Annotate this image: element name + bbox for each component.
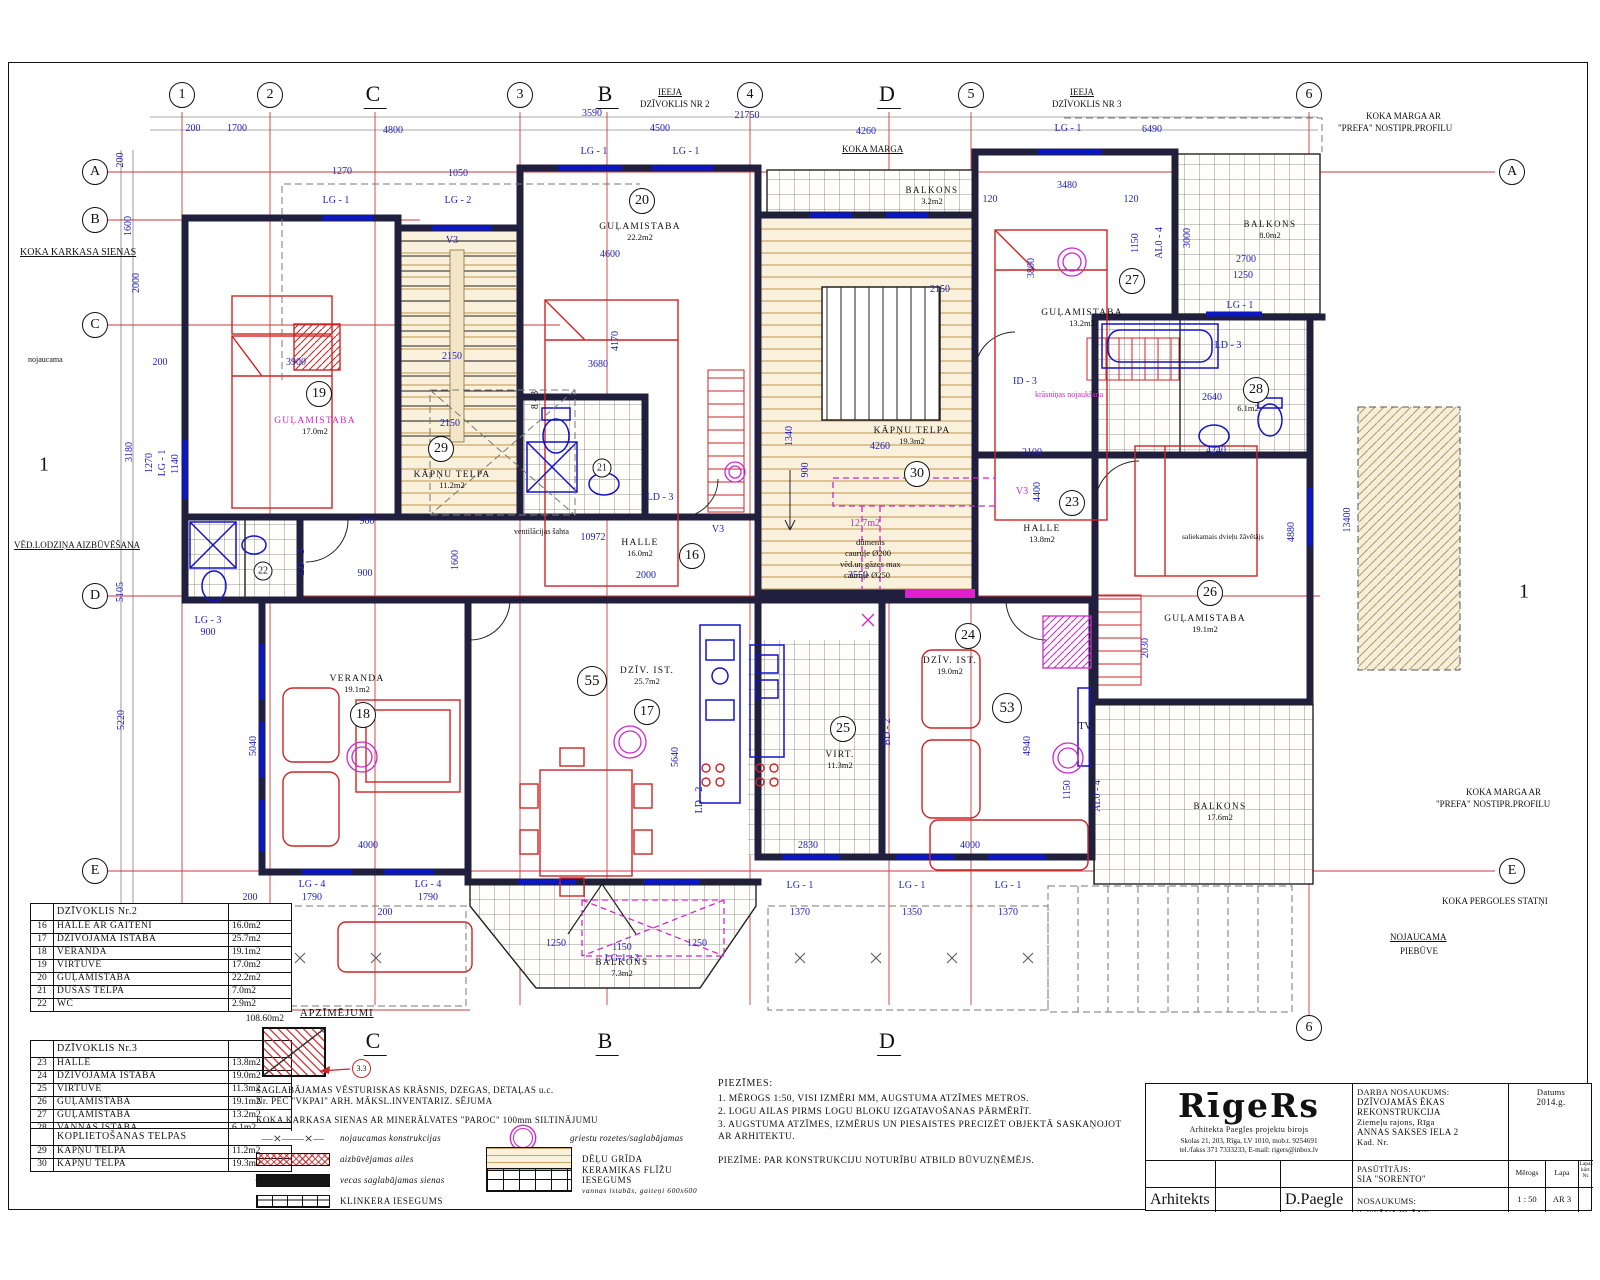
room-label-20: GUĻAMISTABA22.2m2 xyxy=(599,222,681,243)
company-subtitle: Arhitekta Paegles projektu birojs xyxy=(1146,1125,1352,1134)
room-table-0: DZĪVOKLIS Nr.216HALLE AR GAITENI16.0m217… xyxy=(30,903,292,1024)
dim-label-36: 3180 xyxy=(125,442,135,462)
job-line5: Kad. Nr. xyxy=(1357,1137,1504,1147)
dim-label-35: 2000 xyxy=(132,273,142,293)
drawing-name-cell: NOSAUKUMS: 2. STĀVA PLĀNS xyxy=(1353,1188,1509,1212)
table-row: 16HALLE AR GAITENI16.0m2 xyxy=(31,921,292,934)
dim-label-20: AL0 - 4 xyxy=(1155,227,1165,259)
annotation-15: ventilācijas šahta xyxy=(514,528,569,537)
table-title: DZĪVOKLIS Nr.2 xyxy=(54,904,229,921)
annotation-9: "PREFA" NOSTIPR.PROFILU xyxy=(1338,124,1452,134)
dim-label-10: LG - 1 xyxy=(323,196,350,206)
dim-label-58: 2030 xyxy=(1141,638,1151,658)
balcony-label-2: BALKONS17.6m2 xyxy=(1193,801,1246,822)
dim-label-39: 1140 xyxy=(171,454,181,474)
room-number-23: 23 xyxy=(1059,490,1085,516)
table-title: KOPLIETOŠANAS TELPAS xyxy=(54,1129,229,1146)
dim-label-90: LD - 3 xyxy=(297,549,307,576)
table-row: 30KĀPŅU TELPA19.3m2 xyxy=(31,1159,292,1172)
room-number-26: 26 xyxy=(1197,580,1223,606)
room-number-30: 30 xyxy=(904,461,930,487)
dim-label-74: 200 xyxy=(378,908,393,918)
dim-label-52: 900 xyxy=(801,463,811,478)
dim-label-26: 4170 xyxy=(611,331,621,351)
grid-axis-top-5: 5 xyxy=(958,82,984,108)
room-label-26: GUĻAMISTABA19.1m2 xyxy=(1164,614,1246,635)
titleblock-client-cell: PASŪTĪTĀJS: SIA "SORENTO" xyxy=(1353,1161,1509,1188)
dim-label-76: LG-1 +2 xyxy=(605,954,640,964)
dim-label-45: 900 xyxy=(360,517,375,527)
client-value: SIA "SORENTO" xyxy=(1357,1174,1504,1184)
dim-label-19: 1150 xyxy=(1131,233,1141,253)
room-table-grid: DZĪVOKLIS Nr.323HALLE13.8m224DZĪVOJAMĀ I… xyxy=(30,1040,292,1136)
dim-label-3: 3590 xyxy=(582,109,602,119)
job-line1: DZĪVOJAMĀS ĒKAS xyxy=(1357,1097,1504,1107)
room-number-19: 19 xyxy=(306,381,332,407)
annotation-1: nojaucama xyxy=(28,356,63,365)
annotation-13: NOJAUCAMA xyxy=(1390,933,1447,943)
sheetno-header: Lapas kārt. Nr. xyxy=(1579,1161,1593,1188)
grid-axis-top-1: 1 xyxy=(169,82,195,108)
titleblock-date-cell: Datums 2014.g. xyxy=(1509,1084,1593,1161)
dim-label-6: 4260 xyxy=(856,127,876,137)
dim-label-12: LG - 1 xyxy=(581,147,608,157)
annotation-12: KOKA PERGOLES STATŅI xyxy=(1442,897,1548,907)
annotation-19: cauruļe Ø250 xyxy=(844,571,890,580)
room-label-27: GUĻAMISTABA13.2m2 xyxy=(1041,308,1123,329)
dim-label-9: 1050 xyxy=(448,169,468,179)
annotation-18: vēd.un gāzes max xyxy=(840,560,901,569)
legend-column-left: —⨯——⨯—nojaucamas konstrukcijasaizbūvējam… xyxy=(256,1125,486,1209)
dim-label-2: 4800 xyxy=(383,126,403,136)
author-cell: D.Paegle xyxy=(1281,1188,1353,1212)
dim-label-27: 3680 xyxy=(588,360,608,370)
dim-label-46: 900 xyxy=(358,569,373,579)
dim-label-41: 5220 xyxy=(117,710,127,730)
dim-label-16: 120 xyxy=(983,195,998,205)
annotation-14: PIEBŪVE xyxy=(1400,947,1438,957)
room-label-17: DZĪV. IST.25.7m2 xyxy=(620,666,674,687)
grid-axis-right-A: A xyxy=(1499,159,1525,185)
dim-label-67: BD - 2 xyxy=(883,718,893,745)
table-row: 17DZĪVOJAMĀ ISTABA25.7m2 xyxy=(31,934,292,947)
dim-label-59: 5640 xyxy=(671,747,681,767)
dim-label-18: 3800 xyxy=(1027,258,1037,278)
grid-axis-left-E: E xyxy=(82,858,108,884)
dim-label-24: LG - 1 xyxy=(1227,301,1254,311)
grid-axis-left-B: B xyxy=(82,207,108,233)
dim-label-40: 5105 xyxy=(116,582,126,602)
dim-label-55: 4240 xyxy=(1206,446,1226,456)
drawing-sheet: { "axes": { "top": [ {"l":"1","x":182,"c… xyxy=(0,0,1600,1280)
room-table-2: KOPLIETOŠANAS TELPAS29KĀPŅU TELPA11.2m23… xyxy=(30,1128,292,1184)
annotation-0: KOKA KARKASA SIENAS xyxy=(20,247,136,258)
dim-label-71: LG - 4 xyxy=(415,880,442,890)
room-number-22: 22 xyxy=(254,562,273,581)
floor-finishes xyxy=(187,154,1460,988)
balcony-label-0: BALKONS3.2m2 xyxy=(905,185,958,206)
room-number-53: 53 xyxy=(992,693,1022,723)
dim-label-51: 1340 xyxy=(785,426,795,446)
annotation-7: KOKA MARGA xyxy=(842,145,903,155)
dim-label-53: 2100 xyxy=(1022,448,1042,458)
table-title: DZĪVOKLIS Nr.3 xyxy=(54,1041,229,1058)
dim-label-84: 1370 xyxy=(998,908,1018,918)
grid-axis-left-A: A xyxy=(82,159,108,185)
job-label: DARBA NOSAUKUMS: xyxy=(1357,1087,1504,1097)
room-number-21: 21 xyxy=(593,459,612,478)
company-logo: RīgeRs xyxy=(1146,1086,1352,1125)
table-row: 18VERANDA19.1m2 xyxy=(31,947,292,960)
legend-swatch-grid-icon xyxy=(256,1195,330,1208)
table-row: 21DUŠAS TELPA7.0m2 xyxy=(31,986,292,999)
dim-label-78: 1250 xyxy=(687,939,707,949)
room-number-18: 18 xyxy=(350,702,376,728)
room-number-55: 55 xyxy=(577,666,607,696)
company-address: Skolas 21, 203, Rīga, LV 1010, mob.t. 92… xyxy=(1146,1137,1352,1155)
room-label-19: GUĻAMISTABA17.0m2 xyxy=(274,416,356,437)
dim-label-44: 10972 xyxy=(581,533,606,543)
dim-label-64: 4940 xyxy=(1023,736,1033,756)
dim-label-17: 120 xyxy=(1124,195,1139,205)
annotation-20: saliekamais dvieļu žāvētājs xyxy=(1182,533,1264,541)
legend-label: nojaucamas konstrukcijas xyxy=(340,1133,441,1143)
legend: APZĪMĒJUMI 3.3 SAGLABĀJAMAS VĒSTURISKAS … xyxy=(256,1008,708,1209)
legend-swatch-redcross-icon xyxy=(256,1153,330,1166)
room-label-24: DZĪV. IST.19.0m2 xyxy=(923,656,977,677)
annotation-17: cauruļe Ø200 xyxy=(845,549,891,558)
dim-label-30: 2150 xyxy=(930,285,950,295)
dim-label-75: 1150 xyxy=(612,943,632,953)
table-row: 24DZĪVOJAMĀ ISTABA19.0m2 xyxy=(31,1071,292,1084)
dim-label-56: 4880 xyxy=(1287,522,1297,542)
table-row: 23HALLE13.8m2 xyxy=(31,1058,292,1071)
room-number-27: 27 xyxy=(1119,268,1145,294)
drawing-name-label: NOSAUKUMS: xyxy=(1357,1196,1416,1206)
dim-label-23: 1250 xyxy=(1233,271,1253,281)
dim-label-22: 2700 xyxy=(1236,255,1256,265)
grid-axis-right-E: E xyxy=(1499,858,1525,884)
dim-label-32: 200 xyxy=(153,358,168,368)
balcony-label-1: BALKONS8.0m2 xyxy=(1243,219,1296,240)
room-label-18: VERANDA19.1m2 xyxy=(330,674,385,695)
titleblock-empty-3 xyxy=(1281,1161,1353,1188)
note-item-2: 3. AUGSTUMA ATZĪMES, IZMĒRUS UN PIESAIST… xyxy=(718,1119,1148,1132)
dim-label-47: 1600 xyxy=(451,550,461,570)
grid-axis-left-D: D xyxy=(82,583,108,609)
grid-axis-bottom-D: D xyxy=(877,1028,901,1056)
annotation-3: IEEJA xyxy=(658,88,682,98)
dim-label-48: 2000 xyxy=(636,571,656,581)
dim-label-21: 3000 xyxy=(1183,228,1193,248)
room-label-25: VIRT.11.3m2 xyxy=(825,750,854,771)
legend-swatch-tile-icon xyxy=(486,1168,572,1192)
dim-label-95: TV xyxy=(1078,722,1091,732)
annotation-11: "PREFA" NOSTIPR.PROFILU xyxy=(1436,800,1550,810)
legend-label: vecas saglabājamas sienas xyxy=(340,1175,445,1185)
notes-items: 1. MĒROGS 1:50, VISI IZMĒRI MM, AUGSTUMA… xyxy=(718,1093,1148,1144)
dim-label-72: 1790 xyxy=(418,893,438,903)
legend-swatch-xline-icon: —⨯——⨯— xyxy=(256,1131,330,1145)
room-number-24: 24 xyxy=(955,623,981,649)
drawing-name-value: 2. STĀVA PLĀNS xyxy=(1357,1209,1504,1212)
job-line3: Ziemeļu rajons, Rīga xyxy=(1357,1117,1504,1127)
dim-label-91: LD - 3 xyxy=(647,493,674,503)
legend-stove-symbol: 3.3 xyxy=(256,1025,456,1083)
client-label: PASŪTĪTĀJS: xyxy=(1357,1164,1504,1174)
dim-label-80: 1370 xyxy=(790,908,810,918)
dim-label-7: 6490 xyxy=(1142,125,1162,135)
room-number-16: 16 xyxy=(679,543,705,569)
dim-label-61: 4000 xyxy=(358,841,378,851)
dim-label-94: 8 - 3 xyxy=(531,391,541,409)
legend-item-left-0: —⨯——⨯—nojaucamas konstrukcijas xyxy=(256,1131,486,1146)
legend-label: DĒĻU GRĪDA xyxy=(582,1154,643,1164)
annotation-21: krāsniņas nojaukšana xyxy=(1035,391,1103,400)
dim-label-42: LG - 3 xyxy=(195,616,222,626)
date-label: Datums xyxy=(1513,1087,1589,1097)
dim-label-57: 13400 xyxy=(1343,508,1353,533)
dim-label-92: LD - 3 xyxy=(1215,341,1242,351)
dim-label-43: 900 xyxy=(201,628,216,638)
dim-label-8: 1270 xyxy=(332,167,352,177)
dim-label-11: LG - 2 xyxy=(445,196,472,206)
room-number-17: 17 xyxy=(634,699,660,725)
dim-label-65: 1150 xyxy=(1063,780,1073,800)
room-table-grid: KOPLIETOŠANAS TELPAS29KĀPŅU TELPA11.2m23… xyxy=(30,1128,292,1172)
dim-label-0: 200 xyxy=(186,124,201,134)
role-cell: Arhitekts xyxy=(1146,1188,1216,1212)
dim-label-79: LG - 1 xyxy=(787,881,814,891)
dim-label-69: LG - 4 xyxy=(299,880,326,890)
titleblock-empty-1 xyxy=(1146,1161,1216,1188)
table-row: 20GUĻAMISTABA22.2m2 xyxy=(31,973,292,986)
dim-label-15: 3480 xyxy=(1057,181,1077,191)
note-item-3: AR ARHITEKTU. xyxy=(718,1131,1148,1144)
table-row: 19VIRTUVE17.0m2 xyxy=(31,960,292,973)
grid-axis-top-2: 2 xyxy=(257,82,283,108)
titleblock-logo-cell: RīgeRs Arhitekta Paegles projektu birojs… xyxy=(1146,1084,1353,1161)
dim-label-93: 12.7m2 xyxy=(850,519,880,529)
dim-label-28: 2150 xyxy=(442,352,462,362)
grid-axis-top-3: 3 xyxy=(507,82,533,108)
titleblock-empty-2 xyxy=(1216,1161,1281,1188)
grid-axis-left-C: C xyxy=(82,312,108,338)
grid-axis-top-D: D xyxy=(877,81,901,109)
role-empty-cell xyxy=(1216,1188,1281,1212)
job-line2: REKONSTRUKCIJA xyxy=(1357,1107,1504,1117)
sheet-value: AR 3 xyxy=(1546,1188,1579,1212)
room-label-29: KĀPŅU TELPA11.2m2 xyxy=(414,470,491,491)
dim-label-77: 1250 xyxy=(546,939,566,949)
table-row: 22WC2.9m2 xyxy=(31,999,292,1012)
dim-label-66: AL0 - 4 xyxy=(1093,780,1103,812)
dim-label-89: V3 xyxy=(1016,487,1028,497)
table-total: 30.5m2 xyxy=(30,1172,292,1184)
dim-label-82: 1350 xyxy=(902,908,922,918)
sheet-header: Lapa xyxy=(1546,1161,1579,1188)
legend-item-left-1: aizbūvējamas ailes xyxy=(256,1152,486,1167)
legend-item-left-2: vecas saglabājamas sienas xyxy=(256,1173,486,1188)
notes-block: PIEZĪMES: 1. MĒROGS 1:50, VISI IZMĒRI MM… xyxy=(718,1078,1148,1166)
table-total: 108.60m2 xyxy=(30,1012,292,1024)
annotation-6: DZĪVOKLIS NR 3 xyxy=(1052,100,1122,110)
dim-label-4: 4500 xyxy=(650,124,670,134)
legend-note-2: KOKA KARKASA SIENAS AR MINERĀLVATES "PAR… xyxy=(256,1115,708,1125)
legend-label: KERAMIKAS FLĪŽU IESEGUMSvannas istabās, … xyxy=(582,1165,708,1195)
dim-label-33: 200 xyxy=(116,153,126,168)
dim-label-83: LG - 1 xyxy=(995,881,1022,891)
room-area-28: 6.1m2 xyxy=(1237,404,1259,414)
note-item-0: 1. MĒROGS 1:50, VISI IZMĒRI MM, AUGSTUMA… xyxy=(718,1093,1148,1106)
dim-label-13: LG - 1 xyxy=(673,147,700,157)
annotation-16: dūmenis xyxy=(856,538,885,547)
date-value: 2014.g. xyxy=(1513,1097,1589,1107)
room-table-grid: DZĪVOKLIS Nr.216HALLE AR GAITENI16.0m217… xyxy=(30,903,292,1012)
legend-title: APZĪMĒJUMI xyxy=(300,1008,708,1019)
dim-label-81: LG - 1 xyxy=(899,881,926,891)
legend-item-right-0: griestu rozetes/saglabājamas xyxy=(486,1131,708,1146)
dim-label-54: 4400 xyxy=(1033,482,1043,502)
annotation-2: VĒD.LODZIŅA AIZBŪVĒŠANA xyxy=(14,541,140,551)
legend-label: griestu rozetes/saglabājamas xyxy=(570,1133,683,1143)
note-item-1: 2. LOGU AILAS PIRMS LOGU BLOKU IZGATAVOŠ… xyxy=(718,1106,1148,1119)
dim-label-60: 5040 xyxy=(249,736,259,756)
dim-label-63: 4000 xyxy=(960,841,980,851)
legend-item-right-2: KERAMIKAS FLĪŽU IESEGUMSvannas istabās, … xyxy=(486,1173,708,1188)
annotation-5: IEEJA xyxy=(1070,88,1094,98)
dim-label-68: LD - 2 xyxy=(695,787,705,814)
dim-label-37: 1270 xyxy=(145,453,155,473)
grid-axis-top-4: 4 xyxy=(737,82,763,108)
table-row: 27GUĻAMISTABA13.2m2 xyxy=(31,1110,292,1123)
dim-label-86: ID - 3 xyxy=(1013,377,1037,387)
dim-label-38: LG - 1 xyxy=(158,450,168,477)
legend-swatch-black-icon xyxy=(256,1174,330,1187)
stove-number-badge: 3.3 xyxy=(352,1059,371,1078)
room-number-28: 28 xyxy=(1243,377,1269,403)
notes-footer: PIEZĪME: PAR KONSTRUKCIJU NOTURĪBU ATBIL… xyxy=(718,1156,1148,1166)
dim-label-29: 2150 xyxy=(440,419,460,429)
sheetno-value xyxy=(1579,1188,1593,1212)
section-mark-1: 1 xyxy=(1519,581,1529,604)
job-line4: ANNAS SAKSES IELA 2 xyxy=(1357,1127,1504,1137)
legend-label: KLINKERA IESEGUMS xyxy=(340,1196,443,1206)
grid-axis-top-C: C xyxy=(364,81,387,109)
room-label-23: HALLE13.8m2 xyxy=(1023,524,1060,545)
table-row: 25VIRTUVE11.3m2 xyxy=(31,1084,292,1097)
title-block: RīgeRs Arhitekta Paegles projektu birojs… xyxy=(1145,1083,1592,1211)
dim-label-31: 3900 xyxy=(286,358,306,368)
room-number-25: 25 xyxy=(830,716,856,742)
dim-label-5: 21750 xyxy=(735,111,760,121)
titleblock-job-cell: DARBA NOSAUKUMS: DZĪVOJAMĀS ĒKAS REKONST… xyxy=(1353,1084,1509,1161)
room-label-16: HALLE16.0m2 xyxy=(621,538,658,559)
room-number-20: 20 xyxy=(629,188,655,214)
room-number-29: 29 xyxy=(428,436,454,462)
dim-label-50: 4260 xyxy=(870,442,890,452)
dim-label-62: 2830 xyxy=(798,841,818,851)
section-mark-1: 1 xyxy=(39,454,49,477)
dim-label-85: 2640 xyxy=(1202,393,1222,403)
legend-column-right: griestu rozetes/saglabājamasDĒĻU GRĪDAKE… xyxy=(486,1125,708,1209)
table-row: 26GUĻAMISTABA19.1m2 xyxy=(31,1097,292,1110)
legend-item-left-3: KLINKERA IESEGUMS xyxy=(256,1194,486,1209)
dim-label-88: V3 xyxy=(712,525,724,535)
table-row: 29KĀPŅU TELPA11.2m2 xyxy=(31,1146,292,1159)
dim-label-73: 200 xyxy=(243,893,258,903)
grid-axis-top-B: B xyxy=(596,81,619,109)
dim-label-87: V3 xyxy=(446,236,458,246)
legend-label: aizbūvējamas ailes xyxy=(340,1154,414,1164)
annotation-10: KOKA MARGA AR xyxy=(1466,788,1541,798)
annotation-8: KOKA MARGA AR xyxy=(1366,112,1441,122)
scale-value: 1 : 50 xyxy=(1509,1188,1546,1212)
grid-axis-bottom-6: 6 xyxy=(1296,1015,1322,1041)
legend-note-1: SAGLABĀJAMAS VĒSTURISKAS KRĀSNIS, DZEGAS… xyxy=(256,1085,708,1108)
dim-label-1: 1700 xyxy=(227,124,247,134)
dim-label-14: LG - 1 xyxy=(1055,124,1082,134)
annotation-4: DZĪVOKLIS NR 2 xyxy=(640,100,710,110)
dim-label-34: 1600 xyxy=(124,216,134,236)
scale-header: Mērogs xyxy=(1509,1161,1546,1188)
dim-label-70: 1790 xyxy=(302,893,322,903)
notes-title: PIEZĪMES: xyxy=(718,1078,1148,1089)
dim-label-25: 4600 xyxy=(600,250,620,260)
grid-axis-top-6: 6 xyxy=(1296,82,1322,108)
